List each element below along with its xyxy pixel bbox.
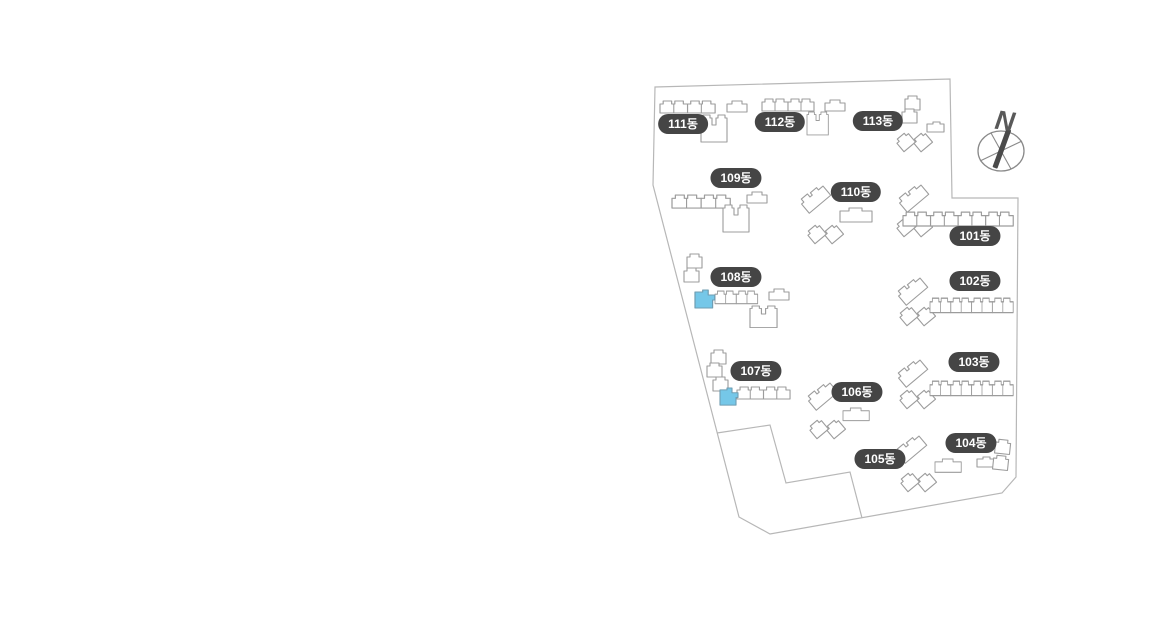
building-label-112[interactable]: 112동 xyxy=(755,112,805,132)
building-footprint-108 xyxy=(684,254,789,328)
building-label-113[interactable]: 113동 xyxy=(853,111,903,131)
building-label-101[interactable]: 101동 xyxy=(949,226,1000,246)
site-map: N 101동 102동 103동 104동 105동 106동 107동 108… xyxy=(0,0,1160,630)
building-label-104[interactable]: 104동 xyxy=(945,433,996,453)
inner-parcel-line xyxy=(717,425,862,518)
building-label-103[interactable]: 103동 xyxy=(948,352,999,372)
highlighted-unit-108[interactable] xyxy=(695,290,715,308)
site-map-svg: N xyxy=(0,0,1160,630)
building-label-106[interactable]: 106동 xyxy=(831,382,882,402)
building-label-109[interactable]: 109동 xyxy=(710,168,761,188)
building-footprint-109 xyxy=(672,192,767,232)
highlighted-unit-107[interactable] xyxy=(720,388,738,405)
building-label-110[interactable]: 110동 xyxy=(831,182,881,202)
building-label-108[interactable]: 108동 xyxy=(710,267,761,287)
building-label-102[interactable]: 102동 xyxy=(949,271,1000,291)
compass-north-label: N xyxy=(993,105,1017,137)
building-label-105[interactable]: 105동 xyxy=(854,449,905,469)
building-footprint-113 xyxy=(895,96,944,160)
building-label-107[interactable]: 107동 xyxy=(730,361,781,381)
building-label-111[interactable]: 111동 xyxy=(658,114,708,134)
